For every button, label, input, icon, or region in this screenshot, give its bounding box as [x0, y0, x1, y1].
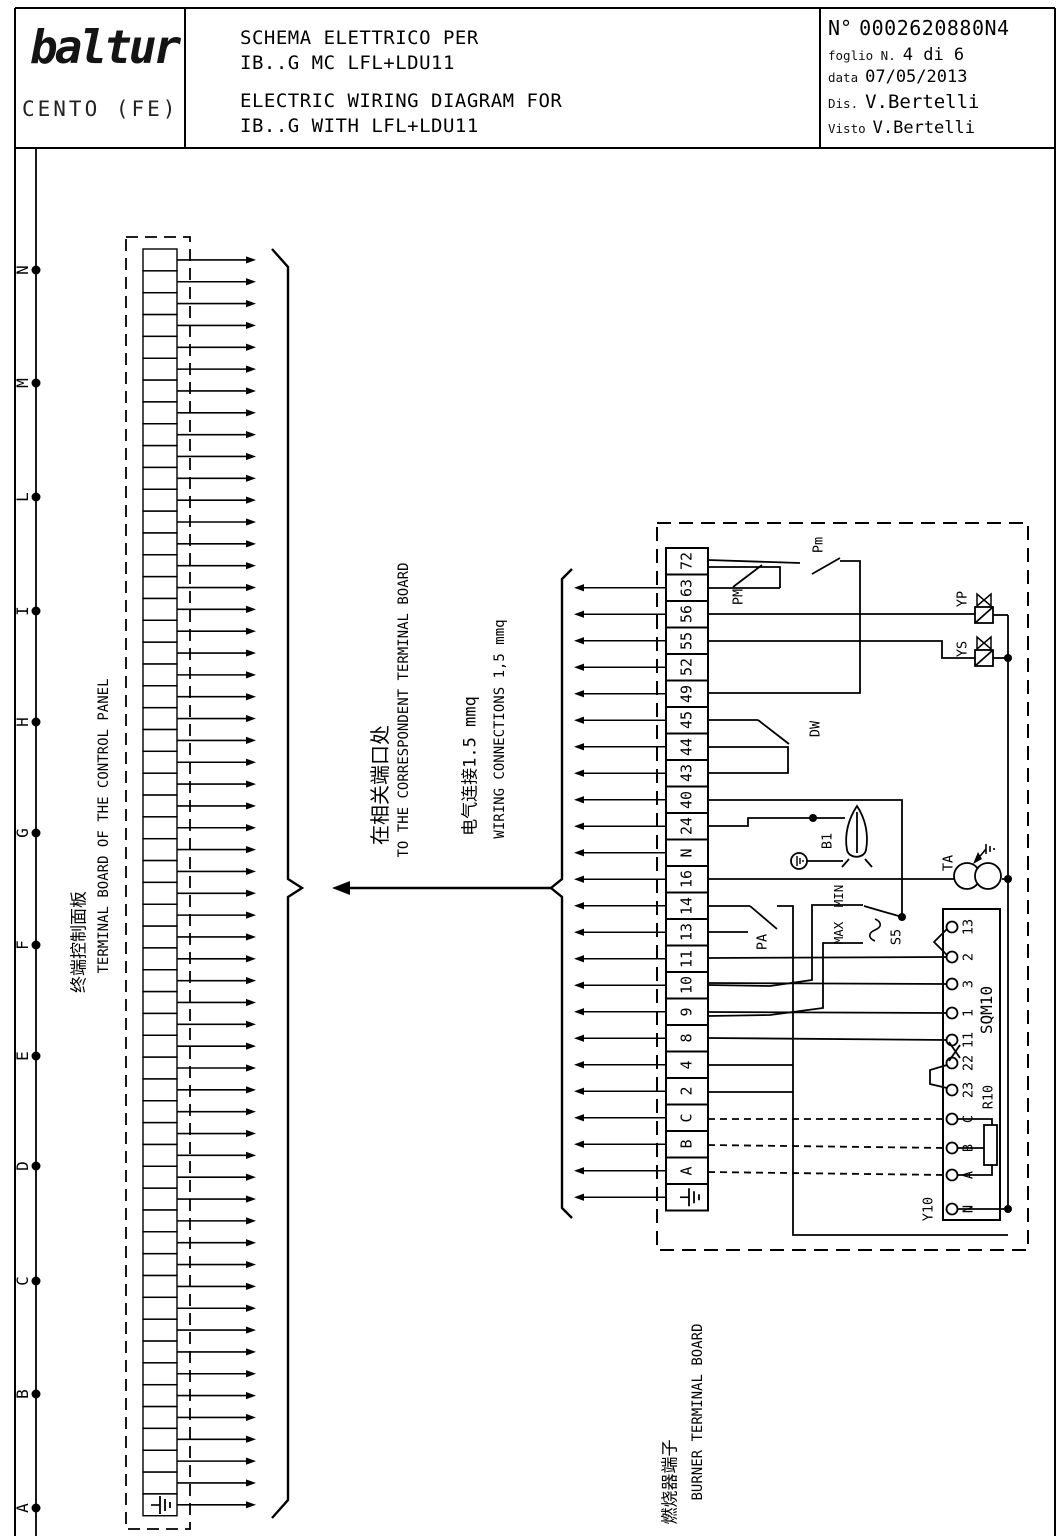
left-wire-arrowhead — [246, 1261, 256, 1268]
label-ys: YS — [956, 641, 970, 657]
sqm10-terminal-circle — [947, 1058, 958, 1069]
junction-dot — [32, 1277, 41, 1286]
label-r10: R10 — [982, 1085, 996, 1109]
left-terminal-cell — [143, 1428, 177, 1450]
left-terminal-cell — [143, 1188, 177, 1210]
zone-letter-G: G — [15, 828, 31, 838]
right-wire-arrowhead — [574, 823, 584, 830]
doc-sheet-label: foglio N. — [828, 48, 896, 63]
wire — [708, 747, 788, 773]
left-brace — [272, 249, 302, 1518]
doc-date-value: 07/05/2013 — [865, 67, 967, 87]
doc-sheet-value: 4 di 6 — [903, 45, 964, 65]
left-terminal-cell — [143, 1297, 177, 1319]
left-wire-arrowhead — [246, 999, 256, 1006]
wire — [708, 943, 863, 1016]
doc-sheet-row: foglio N. 4 di 6 — [828, 45, 964, 65]
right-wire-arrowhead — [574, 1114, 584, 1121]
label-sqm10: SQM10 — [979, 986, 995, 1034]
left-wire-arrowhead — [246, 1086, 256, 1093]
left-wire-arrowhead — [246, 628, 256, 635]
wire — [842, 859, 849, 867]
burner-terminal-label-43: 43 — [680, 764, 695, 782]
sqm10-terminal-label-23: 23 — [962, 1082, 976, 1098]
left-wire-arrowhead — [246, 1501, 256, 1508]
sqm10-terminal-circle — [947, 1143, 958, 1154]
left-wire-arrowhead — [246, 409, 256, 416]
sqm10-terminal-label-1: 1 — [962, 1009, 976, 1017]
ta-coil — [975, 863, 1001, 889]
left-wire-arrowhead — [246, 649, 256, 656]
right-wire-arrowhead — [574, 637, 584, 644]
zone-letter-L: L — [15, 492, 31, 502]
zone-letter-B: B — [15, 1389, 31, 1399]
left-wire-arrowhead — [246, 344, 256, 351]
left-terminal-cell — [143, 249, 177, 271]
left-terminal-cell — [143, 620, 177, 642]
left-wire-arrowhead — [246, 1283, 256, 1290]
zone-letter-C: C — [15, 1276, 31, 1286]
right-wire-arrowhead — [574, 982, 584, 989]
pm-max-switch-blade — [733, 565, 762, 587]
right-wire-arrowhead — [574, 664, 584, 671]
wire — [975, 650, 993, 666]
left-terminal-cell — [143, 926, 177, 948]
label-pm-max: PM — [732, 589, 746, 605]
annotation-wiring-en: WIRING CONNECTIONS 1,5 mmq — [493, 619, 507, 838]
left-terminal-cell — [143, 577, 177, 599]
left-wire-arrowhead — [246, 300, 256, 307]
doc-number-label: N° — [828, 16, 852, 40]
burner-terminal-label-C: C — [680, 1113, 695, 1122]
burner-terminal-label-40: 40 — [680, 791, 695, 809]
sqm10-bridge-22-23 — [930, 1065, 947, 1088]
left-wire-arrowhead — [246, 933, 256, 940]
left-wire-arrowhead — [246, 1239, 256, 1246]
left-terminal-cell — [143, 1385, 177, 1407]
left-terminal-cell — [143, 1232, 177, 1254]
junction-dot — [1004, 875, 1012, 883]
label-y10: Y10 — [922, 1197, 936, 1221]
sqm10-terminal-circle — [947, 1008, 958, 1019]
left-terminal-cell — [143, 948, 177, 970]
sqm10-terminal-label-B: B — [962, 1144, 976, 1152]
sqm10-terminal-label-11: 11 — [962, 1032, 976, 1048]
annotation-port-cn: 在相关端口处 — [370, 725, 390, 845]
wire — [708, 983, 947, 984]
sqm10-terminal-label-2: 2 — [962, 953, 976, 961]
left-wire-arrowhead — [246, 824, 256, 831]
left-terminal-cell — [143, 1319, 177, 1341]
left-wire-arrowhead — [246, 802, 256, 809]
junction-dot — [1004, 1205, 1012, 1213]
label-s5: S5 — [890, 929, 904, 945]
label-min: MIN — [833, 885, 846, 908]
burner-terminal-label-10: 10 — [680, 976, 695, 994]
right-board-label-en: BURNER TERMINAL BOARD — [691, 1323, 705, 1500]
junction-dot — [32, 1504, 41, 1513]
sqm10-terminal-label-13: 13 — [962, 919, 976, 935]
zone-letter-E: E — [15, 1051, 31, 1061]
wire — [708, 641, 975, 658]
junction-dot — [32, 266, 41, 275]
burner-terminal-label-4: 4 — [680, 1060, 695, 1069]
drawing-sheet: baltur CENTO (FE) SCHEMA ELETTRICO PER I… — [0, 0, 1064, 1536]
left-terminal-cell — [143, 839, 177, 861]
doc-drawn-row: Dis. V.Bertelli — [828, 91, 980, 113]
dashed-wire-A — [708, 1172, 946, 1175]
left-wire-arrowhead — [246, 475, 256, 482]
left-terminal-cell — [143, 271, 177, 293]
doc-drawn-value: V.Bertelli — [865, 91, 979, 113]
zone-letter-M: M — [15, 378, 31, 388]
right-wire-arrowhead — [574, 849, 584, 856]
b1-ground-circle — [791, 853, 807, 869]
left-terminal-cell — [143, 795, 177, 817]
sqm10-terminal-label-C: C — [962, 1115, 976, 1123]
wire — [708, 905, 863, 986]
junction-dot — [32, 1390, 41, 1399]
left-terminal-cell — [143, 904, 177, 926]
right-wire-arrowhead — [574, 876, 584, 883]
zone-letter-I: I — [15, 606, 31, 616]
left-wire-arrowhead — [246, 759, 256, 766]
sqm10-terminal-circle — [947, 1085, 958, 1096]
zone-letter-F: F — [15, 940, 31, 950]
title-line-1: SCHEMA ELETTRICO PER — [240, 27, 479, 49]
left-terminal-cell — [143, 358, 177, 380]
left-terminal-cell — [143, 293, 177, 315]
label-yp: YP — [956, 591, 970, 607]
sqm10-terminal-circle — [947, 1114, 958, 1125]
label-b1: B1 — [821, 833, 835, 849]
right-wire-arrowhead — [574, 955, 584, 962]
left-wire-arrowhead — [246, 387, 256, 394]
right-board-label-cn: 燃烧器端子 — [663, 1440, 680, 1525]
left-wire-arrowhead — [246, 1305, 256, 1312]
left-terminal-cell — [143, 533, 177, 555]
title-line-4: IB..G WITH LFL+LDU11 — [240, 115, 479, 137]
left-terminal-cell — [143, 446, 177, 468]
wire — [708, 560, 800, 563]
right-wire-arrowhead — [574, 584, 584, 591]
valve-body — [977, 637, 991, 649]
label-max: MAX — [833, 922, 846, 945]
left-terminal-cell — [143, 1341, 177, 1363]
right-wire-arrowhead — [574, 1061, 584, 1068]
left-terminal-cell — [143, 861, 177, 883]
sqm10-terminal-circle — [947, 952, 958, 963]
left-terminal-cell — [143, 402, 177, 424]
burner-terminal-label-14: 14 — [680, 897, 695, 915]
left-wire-arrowhead — [246, 1458, 256, 1465]
left-board-label-cn: 终端控制面板 — [72, 891, 89, 993]
burner-terminal-label-N: N — [680, 848, 695, 857]
right-wire-arrowhead — [574, 690, 584, 697]
burner-terminal-label-8: 8 — [680, 1034, 695, 1043]
doc-date-label: data — [828, 70, 858, 85]
zone-letter-A: A — [15, 1503, 31, 1513]
dashed-wire-B — [708, 1145, 946, 1148]
s5-spring — [870, 919, 881, 941]
left-wire-arrowhead — [246, 256, 256, 263]
left-wire-arrowhead — [246, 1108, 256, 1115]
left-terminal-cell — [143, 555, 177, 577]
left-wire-arrowhead — [246, 606, 256, 613]
junction-dot — [32, 1162, 41, 1171]
junction-dot — [32, 379, 41, 388]
left-terminal-cell — [143, 708, 177, 730]
label-pa: PA — [756, 934, 770, 950]
annotation-port-en: TO THE CORRESPONDENT TERMINAL BOARD — [397, 562, 411, 857]
zone-letter-H: H — [15, 717, 31, 727]
left-terminal-cell — [143, 1035, 177, 1057]
wire — [708, 567, 780, 588]
left-terminal-cell — [143, 1254, 177, 1276]
wire — [708, 818, 845, 826]
left-terminal-cell — [143, 1275, 177, 1297]
r10-resistor — [984, 1125, 997, 1165]
right-wire-arrowhead — [574, 770, 584, 777]
left-wire-arrowhead — [246, 671, 256, 678]
left-terminal-cell — [143, 970, 177, 992]
left-wire-arrowhead — [246, 322, 256, 329]
burner-terminal-label-45: 45 — [680, 711, 695, 729]
sqm10-terminal-circle — [947, 1170, 958, 1181]
left-terminal-cell — [143, 1013, 177, 1035]
junction-dot — [32, 718, 41, 727]
left-wire-arrowhead — [246, 780, 256, 787]
left-wire-arrowhead — [246, 431, 256, 438]
left-terminal-cell — [143, 686, 177, 708]
left-terminal-cell — [143, 817, 177, 839]
left-wire-arrowhead — [246, 1043, 256, 1050]
left-wire-arrowhead — [246, 890, 256, 897]
left-wire-arrowhead — [246, 540, 256, 547]
junction-dot — [32, 941, 41, 950]
left-terminal-cell — [143, 424, 177, 446]
left-wire-arrowhead — [246, 1064, 256, 1071]
left-terminal-cell — [143, 664, 177, 686]
burner-terminal-label-49: 49 — [680, 685, 695, 703]
wire — [708, 561, 860, 693]
left-wire-arrowhead — [246, 584, 256, 591]
right-wire-arrowhead — [574, 743, 584, 750]
schematic-linework — [0, 0, 1064, 1536]
burner-terminal-label-11: 11 — [680, 950, 695, 968]
burner-terminal-label-44: 44 — [680, 738, 695, 756]
sqm10-terminal-circle — [947, 922, 958, 933]
left-terminal-cell — [143, 1450, 177, 1472]
wire — [865, 859, 872, 867]
zone-letter-D: D — [15, 1161, 31, 1171]
wire — [975, 607, 993, 623]
burner-terminal-label-55: 55 — [680, 632, 695, 650]
left-wire-arrowhead — [246, 1370, 256, 1377]
right-wire-arrowhead — [574, 902, 584, 909]
burner-terminal-label-A: A — [680, 1166, 695, 1175]
label-dw: DW — [809, 721, 823, 737]
junction-dot — [32, 607, 41, 616]
label-ta: TA — [942, 855, 956, 871]
right-brace — [551, 569, 572, 1218]
left-wire-arrowhead — [246, 453, 256, 460]
sqm10-terminal-label-3: 3 — [962, 980, 976, 988]
annotation-wiring-cn: 电气连接1.5 mmq — [463, 696, 480, 836]
left-wire-arrowhead — [246, 1479, 256, 1486]
left-wire-arrowhead — [246, 1436, 256, 1443]
left-wire-arrowhead — [246, 562, 256, 569]
left-wire-arrowhead — [246, 1195, 256, 1202]
left-wire-arrowhead — [246, 366, 256, 373]
left-terminal-cell — [143, 315, 177, 337]
dw-switch-blade — [758, 720, 789, 744]
wire — [708, 1038, 947, 1040]
sqm10-terminal-circle — [947, 1035, 958, 1046]
left-wire-arrowhead — [246, 1217, 256, 1224]
right-wire-arrowhead — [574, 1167, 584, 1174]
left-terminal-cell — [143, 773, 177, 795]
title-line-3: ELECTRIC WIRING DIAGRAM FOR — [240, 90, 562, 112]
left-terminal-cell — [143, 467, 177, 489]
left-wire-arrowhead — [246, 1174, 256, 1181]
baltur-logo: baltur — [30, 20, 178, 74]
right-wire-arrowhead — [574, 1035, 584, 1042]
wire — [708, 957, 947, 958]
burner-terminal-label-56: 56 — [680, 605, 695, 623]
valve-body — [977, 594, 991, 606]
s5-switch-blade — [864, 906, 902, 917]
doc-date-row: data 07/05/2013 — [828, 67, 967, 87]
burner-terminal-label-B: B — [680, 1140, 695, 1149]
junction-dot — [32, 1052, 41, 1061]
pa-switch-blade — [750, 906, 777, 929]
doc-checked-label: Visto — [828, 121, 866, 136]
title-line-2: IB..G MC LFL+LDU11 — [240, 52, 455, 74]
left-terminal-cell — [143, 751, 177, 773]
junction-dot — [809, 814, 817, 822]
sqm10-bridge-13-2 — [934, 929, 947, 955]
left-terminal-cell — [143, 1123, 177, 1145]
left-terminal-cell — [143, 598, 177, 620]
right-wire-arrowhead — [574, 1141, 584, 1148]
left-terminal-cell — [143, 489, 177, 511]
left-wire-arrowhead — [246, 912, 256, 919]
left-terminal-cell — [143, 729, 177, 751]
left-wire-arrowhead — [246, 868, 256, 875]
burner-terminal-label-13: 13 — [680, 923, 695, 941]
left-wire-arrowhead — [246, 1414, 256, 1421]
left-wire-arrowhead — [246, 1392, 256, 1399]
left-wire-arrowhead — [246, 1326, 256, 1333]
left-wire-arrowhead — [246, 278, 256, 285]
burner-terminal-label-9: 9 — [680, 1007, 695, 1016]
left-terminal-cell — [143, 511, 177, 533]
left-wire-arrowhead — [246, 1348, 256, 1355]
right-wire-arrowhead — [574, 1194, 584, 1201]
left-wire-arrowhead — [246, 1021, 256, 1028]
left-terminal-cell — [143, 1101, 177, 1123]
left-terminal-cell — [143, 1144, 177, 1166]
burner-terminal-label-52: 52 — [680, 658, 695, 676]
left-terminal-cell — [143, 1363, 177, 1385]
left-terminal-cell — [143, 1210, 177, 1232]
logo-city-label: CENTO (FE) — [22, 97, 178, 121]
transfer-arrowhead — [332, 881, 350, 895]
left-terminal-cell — [143, 1472, 177, 1494]
doc-number-row: N° 0002620880N4 — [828, 16, 1010, 40]
right-wire-arrowhead — [574, 929, 584, 936]
sqm10-terminal-label-N: N — [962, 1205, 976, 1213]
junction-dot — [1004, 654, 1012, 662]
left-wire-arrowhead — [246, 497, 256, 504]
left-wire-arrowhead — [246, 715, 256, 722]
left-wire-arrowhead — [246, 955, 256, 962]
label-pm-min: Pm — [812, 537, 826, 553]
left-wire-arrowhead — [246, 846, 256, 853]
wire — [708, 1012, 947, 1013]
left-wire-arrowhead — [246, 1130, 256, 1137]
burner-terminal-label-72: 72 — [680, 552, 695, 570]
doc-checked-row: Visto V.Bertelli — [828, 118, 975, 138]
burner-terminal-label-24: 24 — [680, 817, 695, 835]
left-terminal-cell — [143, 1166, 177, 1188]
right-wire-arrowhead — [574, 1088, 584, 1095]
burner-terminal-label-16: 16 — [680, 870, 695, 888]
left-terminal-cell — [143, 1057, 177, 1079]
junction-dot — [32, 493, 41, 502]
junction-dot — [32, 829, 41, 838]
junction-dot — [898, 913, 906, 921]
left-terminal-cell — [143, 882, 177, 904]
left-terminal-cell — [143, 1079, 177, 1101]
left-terminal-cell — [143, 1407, 177, 1429]
left-board-label-en: TERMINAL BOARD OF THE CONTROL PANEL — [97, 678, 111, 973]
doc-drawn-label: Dis. — [828, 96, 858, 111]
doc-number-value: 0002620880N4 — [859, 16, 1010, 40]
right-wire-arrowhead — [574, 796, 584, 803]
left-wire-arrowhead — [246, 518, 256, 525]
sqm10-terminal-label-A: A — [962, 1171, 976, 1179]
doc-checked-value: V.Bertelli — [873, 118, 975, 138]
right-wire-arrowhead — [574, 717, 584, 724]
ta-ground-arrowhead — [973, 852, 982, 864]
zone-letter-N: N — [15, 265, 31, 275]
right-wire-arrowhead — [574, 611, 584, 618]
left-terminal-cell — [143, 992, 177, 1014]
right-wire-arrowhead — [574, 1008, 584, 1015]
sqm10-terminal-circle — [947, 979, 958, 990]
pm-min-switch-blade — [812, 558, 840, 574]
left-wire-arrowhead — [246, 1152, 256, 1159]
burner-terminal-label-63: 63 — [680, 579, 695, 597]
left-terminal-cell — [143, 336, 177, 358]
left-terminal-cell — [143, 380, 177, 402]
left-terminal-cell — [143, 642, 177, 664]
left-wire-arrowhead — [246, 977, 256, 984]
left-wire-arrowhead — [246, 737, 256, 744]
left-wire-arrowhead — [246, 693, 256, 700]
sqm10-terminal-label-22: 22 — [962, 1055, 976, 1071]
burner-terminal-label-2: 2 — [680, 1087, 695, 1096]
sqm10-terminal-circle — [947, 1204, 958, 1215]
